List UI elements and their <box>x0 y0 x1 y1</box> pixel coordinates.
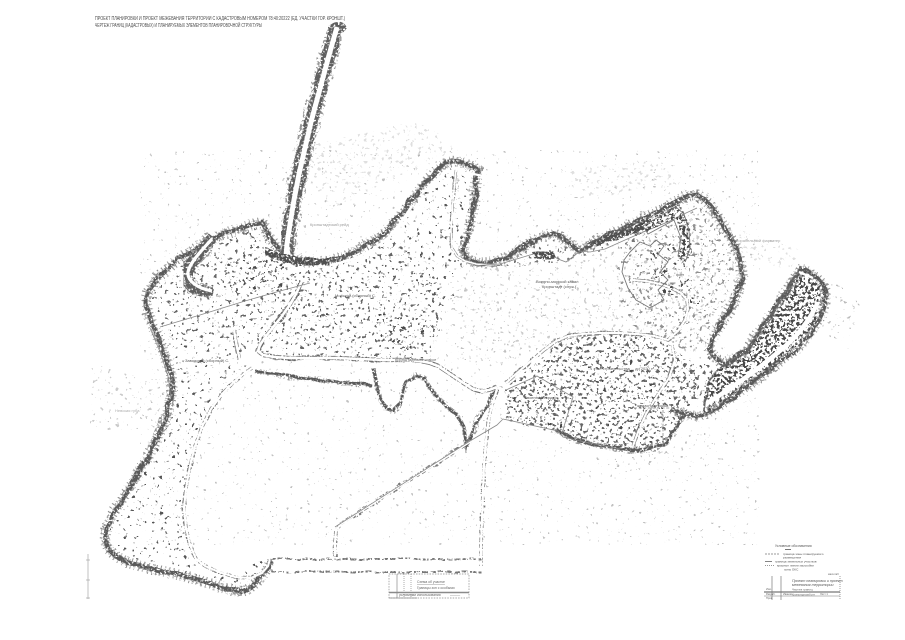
svg-text:Условные обозначения: Условные обозначения <box>775 544 812 548</box>
svg-text:Невская губа: Невская губа <box>115 408 140 413</box>
svg-text:форт: форт <box>676 273 684 277</box>
svg-text:тир: тир <box>216 294 221 298</box>
svg-text:условиями использования: условиями использования <box>399 593 441 597</box>
svg-text:жилая застройка: жилая застройка <box>637 403 669 408</box>
svg-text:Корабельный фарватер: Корабельный фарватер <box>736 238 781 243</box>
svg-text:военный городок: военный городок <box>527 395 559 400</box>
svg-text:Схема об участке: Схема об участке <box>417 580 445 584</box>
svg-text:ЧЕРТЕЖ ГРАНИЦ (КАДАСТРОВЫХ) И: ЧЕРТЕЖ ГРАНИЦ (КАДАСТРОВЫХ) И ПЛАНИРУЕМЫ… <box>95 21 262 29</box>
svg-text:Лист 1: Лист 1 <box>820 592 828 596</box>
svg-text:———: ——— <box>450 593 461 597</box>
svg-text:Изм.: Изм. <box>766 587 772 591</box>
svg-text:Границы зон с особыми: Границы зон с особыми <box>417 586 455 590</box>
svg-text:Кронштадт (служ.): Кронштадт (служ.) <box>542 284 577 289</box>
svg-text:масштаб: масштаб <box>828 572 839 576</box>
svg-text:Кронштадтский р-н: Кронштадтский р-н <box>792 593 816 597</box>
svg-text:Кронштадтское шоссе: Кронштадтское шоссе <box>395 357 437 362</box>
svg-text:ПРОЕКТ ПЛАНИРОВКИ И ПРОЕКТ МЕЖ: ПРОЕКТ ПЛАНИРОВКИ И ПРОЕКТ МЕЖЕВАНИЯ ТЕР… <box>95 16 345 22</box>
svg-text:1 этап строительства ... до 20: 1 этап строительства ... до 2020 г. ... <box>590 366 657 371</box>
svg-text:Разраб.: Разраб. <box>766 592 776 596</box>
svg-text:межевания территории: межевания территории <box>792 583 834 587</box>
svg-text:зоны ОКС: зоны ОКС <box>784 568 799 572</box>
svg-text:Чертеж границ: Чертеж границ <box>792 588 813 592</box>
svg-text:Пров.: Пров. <box>766 596 773 600</box>
svg-text:Кронштадтский рейд: Кронштадтский рейд <box>310 222 349 227</box>
svg-text:Заводской (сборный) С.: Заводской (сборный) С. <box>185 358 229 363</box>
svg-text:Морской (сборный) С.: Морской (сборный) С. <box>335 293 376 298</box>
